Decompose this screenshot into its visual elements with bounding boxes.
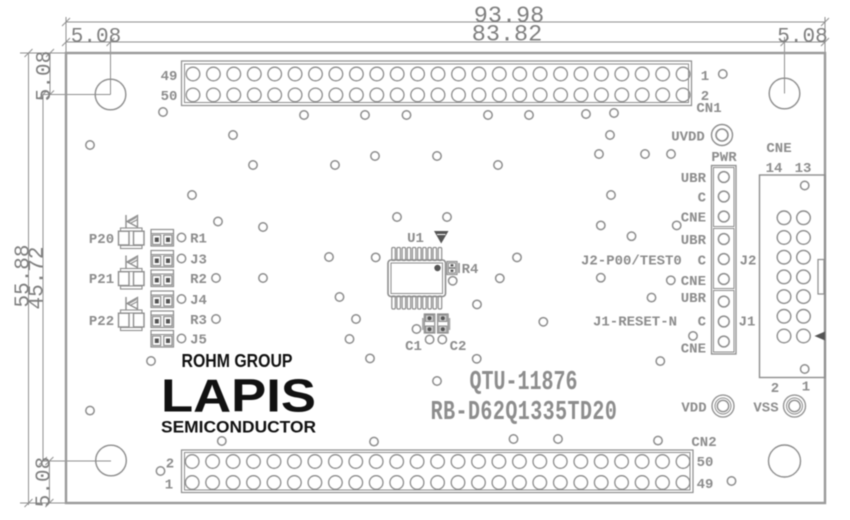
svg-text:LAPIS: LAPIS xyxy=(161,370,316,422)
svg-text:14: 14 xyxy=(766,161,783,177)
svg-text:J4: J4 xyxy=(190,293,207,309)
svg-text:J2: J2 xyxy=(740,254,757,270)
svg-text:J1: J1 xyxy=(739,315,756,331)
svg-text:J1-RESET-N: J1-RESET-N xyxy=(593,315,677,331)
svg-text:R2: R2 xyxy=(190,272,207,288)
svg-text:2: 2 xyxy=(771,381,779,397)
svg-text:83.82: 83.82 xyxy=(472,22,543,49)
svg-text:C2: C2 xyxy=(450,339,467,355)
svg-text:U1: U1 xyxy=(407,231,424,247)
svg-text:5.08: 5.08 xyxy=(34,457,57,507)
svg-text:1: 1 xyxy=(701,69,709,85)
svg-text:CNE: CNE xyxy=(681,211,706,227)
svg-text:R4: R4 xyxy=(462,262,479,278)
svg-text:C: C xyxy=(698,191,707,207)
svg-text:R3: R3 xyxy=(190,313,207,329)
svg-text:50: 50 xyxy=(697,455,714,471)
svg-text:49: 49 xyxy=(697,477,714,493)
svg-text:J3: J3 xyxy=(190,253,207,269)
svg-text:C: C xyxy=(698,315,707,331)
svg-text:J5: J5 xyxy=(190,333,207,349)
svg-text:SEMICONDUCTOR: SEMICONDUCTOR xyxy=(161,418,316,437)
svg-text:50: 50 xyxy=(161,89,178,105)
svg-text:CNE: CNE xyxy=(681,342,706,358)
svg-text:13: 13 xyxy=(795,161,812,177)
svg-text:C: C xyxy=(698,254,707,270)
svg-text:J2-P00/TEST0: J2-P00/TEST0 xyxy=(581,254,682,270)
svg-text:R1: R1 xyxy=(190,232,207,248)
svg-text:P20: P20 xyxy=(89,232,114,248)
svg-text:PWR: PWR xyxy=(711,150,737,166)
svg-text:CN1: CN1 xyxy=(696,101,721,117)
svg-text:49: 49 xyxy=(161,69,178,85)
svg-text:45.72: 45.72 xyxy=(27,246,50,309)
svg-text:UVDD: UVDD xyxy=(671,130,705,146)
svg-text:RB-D62Q1335TD20: RB-D62Q1335TD20 xyxy=(431,399,618,428)
svg-text:UBR: UBR xyxy=(681,291,707,307)
svg-text:5.08: 5.08 xyxy=(777,26,827,49)
svg-text:VSS: VSS xyxy=(753,401,778,417)
svg-text:C1: C1 xyxy=(405,339,422,355)
svg-text:CN2: CN2 xyxy=(691,435,716,451)
svg-text:1: 1 xyxy=(165,478,173,494)
svg-text:2: 2 xyxy=(166,457,174,473)
svg-text:QTU-11876: QTU-11876 xyxy=(470,369,578,398)
svg-text:1: 1 xyxy=(802,380,810,396)
svg-text:5.08: 5.08 xyxy=(71,26,121,49)
svg-text:P21: P21 xyxy=(89,272,114,288)
svg-text:P22: P22 xyxy=(89,314,114,330)
svg-text:UBR: UBR xyxy=(681,171,707,187)
svg-text:UBR: UBR xyxy=(681,233,707,249)
svg-text:VDD: VDD xyxy=(681,401,706,417)
svg-text:5.08: 5.08 xyxy=(34,51,57,101)
svg-text:CNE: CNE xyxy=(766,141,791,157)
svg-text:ROHM GROUP: ROHM GROUP xyxy=(182,350,293,371)
svg-text:CNE: CNE xyxy=(681,274,706,290)
